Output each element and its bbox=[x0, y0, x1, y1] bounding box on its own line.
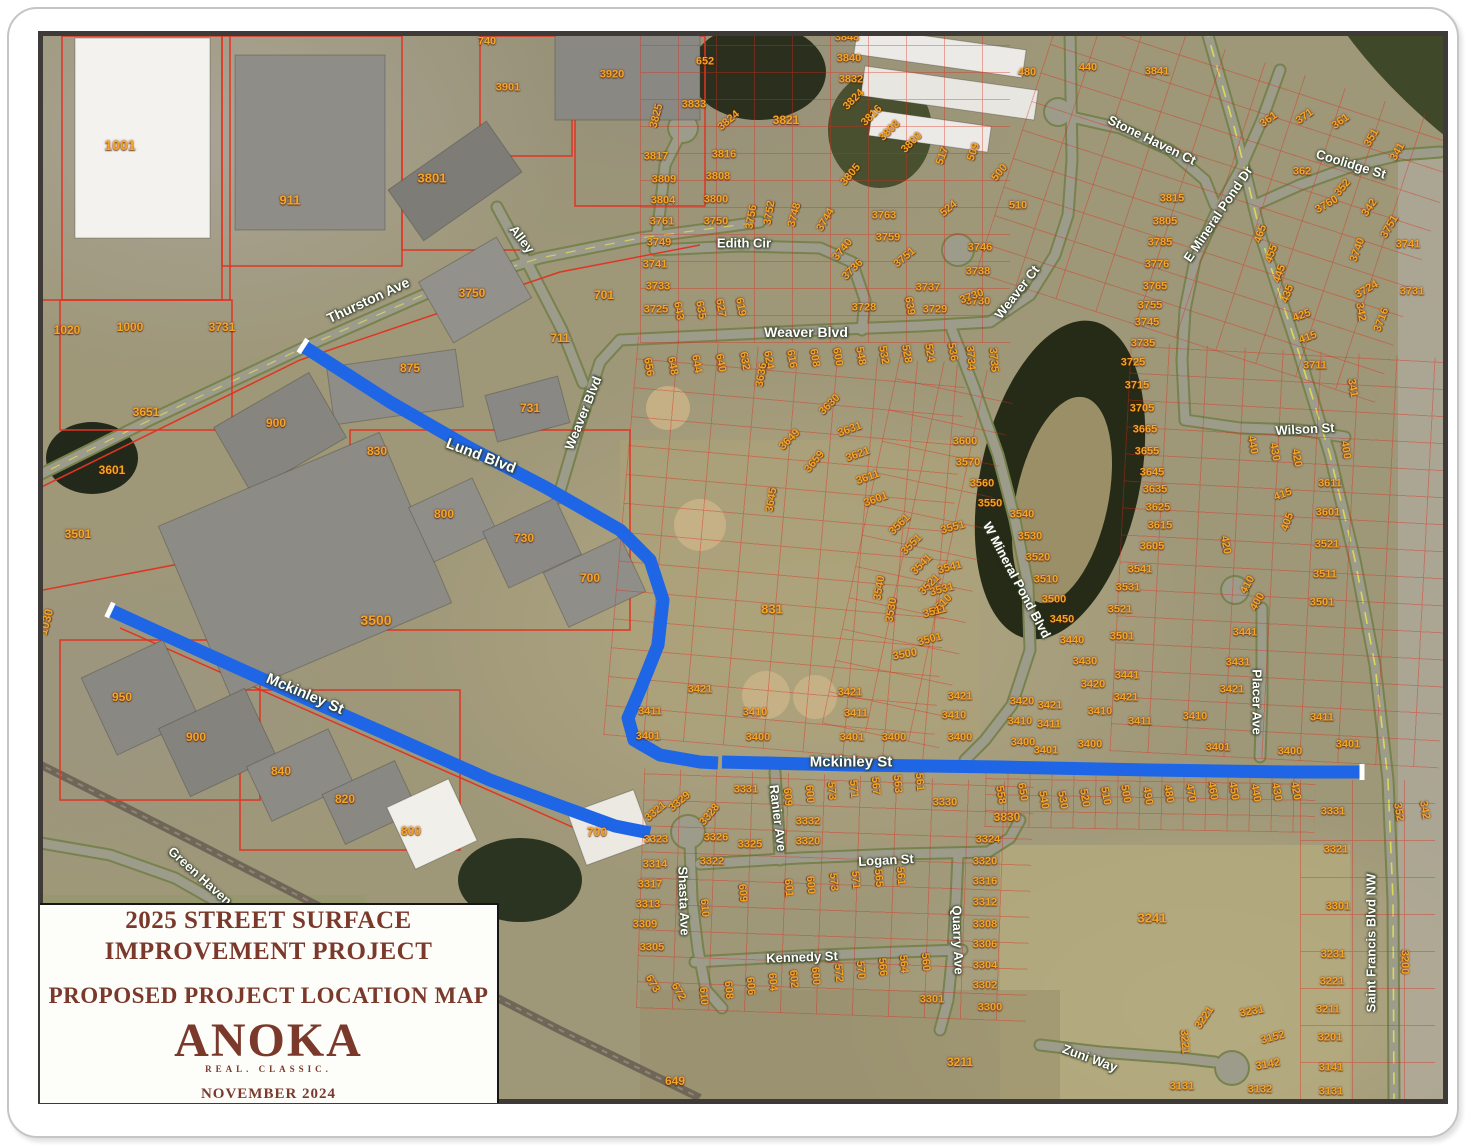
parcel-label: 730 bbox=[514, 532, 534, 544]
parcel-label: 532 bbox=[876, 345, 890, 365]
parcel-label: 3401 bbox=[636, 732, 660, 743]
street-label: Green Haven bbox=[166, 844, 234, 907]
street-label: Wilson St bbox=[1275, 421, 1335, 437]
parcel-label: 3716 bbox=[1373, 307, 1392, 334]
parcel-label: 563 bbox=[891, 774, 904, 793]
parcel-label: 3833 bbox=[682, 100, 706, 111]
parcel-label: 3715 bbox=[1125, 381, 1149, 392]
parcel-label: 3817 bbox=[644, 152, 668, 163]
parcel-label: 3320 bbox=[796, 837, 820, 848]
parcel-label: 830 bbox=[367, 445, 387, 457]
parcel-label: 3314 bbox=[643, 860, 667, 871]
parcel-label: 3920 bbox=[600, 70, 624, 81]
street-label: Mckinley St bbox=[810, 755, 893, 770]
parcel-label: 3308 bbox=[973, 920, 997, 931]
parcel-label: 3328 bbox=[698, 802, 722, 828]
parcel-label: 570 bbox=[854, 960, 867, 979]
parcel-label: 3821 bbox=[773, 114, 800, 126]
parcel-label: 3301 bbox=[920, 995, 944, 1006]
parcel-label: 3611 bbox=[1318, 479, 1342, 490]
parcel-label: 711 bbox=[550, 332, 569, 344]
parcel-label: 3500 bbox=[1042, 595, 1066, 606]
parcel-label: 3765 bbox=[1143, 282, 1167, 293]
parcel-label: 3740 bbox=[1349, 237, 1368, 264]
parcel-label: 3785 bbox=[1148, 238, 1172, 249]
parcel-label: 3725 bbox=[644, 305, 668, 316]
parcel-label: 564 bbox=[897, 954, 910, 973]
parcel-label: 3309 bbox=[633, 920, 657, 931]
parcel-label: 3500 bbox=[892, 647, 918, 662]
parcel-label: 3645 bbox=[1140, 468, 1164, 479]
parcel-label: 3221 bbox=[1320, 977, 1344, 988]
street-label: Alley bbox=[507, 223, 536, 255]
parcel-label: 3651 bbox=[133, 406, 160, 418]
parcel-label: 3241 bbox=[1138, 912, 1167, 925]
parcel-label: 3440 bbox=[1060, 636, 1084, 647]
parcel-label: 540 bbox=[1036, 790, 1050, 810]
parcel-label: 3615 bbox=[1148, 521, 1172, 532]
parcel-label: 3410 bbox=[743, 708, 767, 719]
parcel-label: 3511 bbox=[922, 604, 948, 621]
parcel-label: 3621 bbox=[845, 446, 872, 465]
parcel-label: 652 bbox=[696, 57, 714, 68]
parcel-label: 3735 bbox=[1131, 339, 1155, 350]
street-label: Logan St bbox=[858, 852, 914, 868]
parcel-label: 3324 bbox=[976, 835, 1000, 846]
parcel-label: 3531 bbox=[1116, 583, 1140, 594]
parcel-label: 3752 bbox=[762, 200, 777, 226]
parcel-label: 600 bbox=[804, 875, 817, 894]
parcel-label: 700 bbox=[587, 826, 607, 838]
street-label: E Mineral Pond Dr bbox=[1181, 164, 1254, 264]
parcel-label: 3331 bbox=[734, 785, 758, 796]
parcel-label: 3711 bbox=[1303, 361, 1327, 372]
parcel-label: 3741 bbox=[1396, 240, 1420, 251]
parcel-label: 3410 bbox=[942, 711, 966, 722]
parcel-label: 440 bbox=[1245, 435, 1259, 455]
anoka-logo: ANOKA bbox=[174, 1019, 363, 1062]
parcel-label: 517 bbox=[935, 145, 952, 166]
parcel-label: 3751 bbox=[1379, 214, 1401, 241]
parcel-label: 420 bbox=[1218, 535, 1232, 555]
parcel-label: 3800 bbox=[704, 195, 728, 206]
parcel-label: 3551 bbox=[899, 532, 924, 557]
parcel-label: 520 bbox=[1077, 788, 1091, 808]
parcel-label: 3411 bbox=[1128, 717, 1152, 728]
parcel-label: 571 bbox=[849, 870, 862, 889]
parcel-label: 900 bbox=[266, 417, 286, 429]
parcel-label: 3521 bbox=[1108, 605, 1132, 616]
street-label: Shasta Ave bbox=[676, 866, 691, 936]
parcel-label: 3728 bbox=[852, 303, 876, 314]
parcel-label: 3231 bbox=[1321, 950, 1345, 961]
parcel-label: 635 bbox=[693, 300, 707, 320]
parcel-label: 510 bbox=[1009, 201, 1027, 212]
parcel-label: 3665 bbox=[1133, 425, 1157, 436]
parcel-label: 400 bbox=[1249, 591, 1268, 612]
parcel-label: 604 bbox=[766, 972, 779, 991]
parcel-label: 639 bbox=[902, 296, 916, 316]
parcel-label: 606 bbox=[744, 976, 757, 995]
parcel-label: 440 bbox=[1248, 783, 1262, 803]
parcel-label: 530 bbox=[1055, 790, 1069, 810]
parcel-label: 3322 bbox=[700, 857, 724, 868]
parcel-label: 3401 bbox=[1206, 743, 1230, 754]
parcel-label: 640 bbox=[713, 353, 727, 373]
parcel-label: 875 bbox=[400, 362, 420, 374]
parcel-label: 3325 bbox=[738, 840, 762, 851]
parcel-label: 3645 bbox=[764, 487, 779, 513]
parcel-label: 3401 bbox=[840, 733, 864, 744]
parcel-label: 361 bbox=[1258, 110, 1279, 130]
parcel-label: 3832 bbox=[839, 75, 863, 86]
parcel-label: 800 bbox=[401, 825, 421, 837]
parcel-label: 400 bbox=[1338, 440, 1352, 460]
parcel-label: 3431 bbox=[1226, 658, 1250, 669]
parcel-label: 731 bbox=[520, 402, 540, 414]
street-label: Saint Francis Blvd NW bbox=[1365, 874, 1378, 1013]
street-label: Kennedy St bbox=[766, 949, 838, 964]
parcel-label: 3735 bbox=[986, 347, 999, 372]
parcel-label: 509 bbox=[966, 141, 983, 162]
parcel-label: 3401 bbox=[1034, 746, 1058, 757]
street-label: Placer Ave bbox=[1251, 669, 1264, 735]
parcel-label: 342 bbox=[1417, 800, 1431, 820]
parcel-label: 3141 bbox=[1319, 1063, 1343, 1074]
parcel-label: 3816 bbox=[859, 103, 884, 128]
parcel-label: 3521 bbox=[1315, 540, 1339, 551]
parcel-label: 3824 bbox=[716, 109, 742, 133]
parcel-label: 528 bbox=[899, 344, 913, 364]
parcel-label: 480 bbox=[1018, 68, 1036, 79]
parcel-label: 3731 bbox=[1400, 287, 1424, 298]
parcel-label: 3805 bbox=[1153, 217, 1177, 228]
parcel-label: 3625 bbox=[1146, 503, 1170, 514]
parcel-label: 3631 bbox=[837, 421, 864, 440]
parcel-label: 3332 bbox=[796, 817, 820, 828]
parcel-label: 3410 bbox=[1088, 707, 1112, 718]
parcel-label: 3824 bbox=[841, 87, 866, 112]
parcel-label: 3200 bbox=[1399, 950, 1410, 974]
parcel-label: 3800 bbox=[899, 130, 924, 155]
parcel-label: 648 bbox=[665, 356, 679, 376]
parcel-label: 632 bbox=[737, 351, 751, 371]
street-label: Weaver Ct bbox=[992, 263, 1041, 321]
parcel-label: 3540 bbox=[1010, 510, 1034, 521]
parcel-label: 3801 bbox=[418, 172, 447, 185]
parcel-label: 3601 bbox=[1316, 508, 1340, 519]
parcel-label: 3411 bbox=[638, 707, 662, 718]
title-line-2: IMPROVEMENT PROJECT bbox=[105, 936, 433, 967]
parcel-label: 3131 bbox=[1319, 1087, 1343, 1098]
parcel-label: 3746 bbox=[968, 243, 992, 254]
parcel-label: 3733 bbox=[646, 282, 670, 293]
parcel-label: 3745 bbox=[1135, 318, 1159, 329]
parcel-label: 701 bbox=[594, 289, 614, 301]
parcel-label: 800 bbox=[434, 508, 454, 520]
parcel-label: 500 bbox=[1118, 784, 1132, 804]
parcel-label: 3305 bbox=[640, 943, 664, 954]
parcel-label: 3511 bbox=[1313, 570, 1337, 581]
parcel-label: 3329 bbox=[667, 790, 693, 814]
parcel-label: 352 bbox=[1391, 802, 1405, 822]
parcel-label: 561 bbox=[913, 772, 926, 791]
parcel-label: 609 bbox=[736, 883, 749, 902]
parcel-label: 3330 bbox=[933, 798, 957, 809]
street-label: Quarry Ave bbox=[950, 905, 965, 975]
parcel-label: 3601 bbox=[99, 464, 126, 476]
parcel-label: 455 bbox=[1264, 243, 1281, 264]
parcel-label: 3131 bbox=[1170, 1082, 1194, 1093]
parcel-label: 3659 bbox=[803, 449, 827, 475]
parcel-label: 573 bbox=[827, 872, 840, 891]
parcel-label: 3551 bbox=[940, 520, 966, 537]
parcel-label: 3501 bbox=[65, 528, 92, 540]
parcel-label: 560 bbox=[919, 952, 932, 971]
parcel-label: 3420 bbox=[1010, 697, 1034, 708]
parcel-label: 616 bbox=[784, 349, 798, 369]
parcel-label: 643 bbox=[671, 301, 685, 321]
parcel-label: 3605 bbox=[1140, 542, 1164, 553]
parcel-label: 341 bbox=[1345, 378, 1359, 398]
parcel-label: 3520 bbox=[1026, 553, 1050, 564]
parcel-label: 610 bbox=[698, 898, 711, 917]
parcel-label: 548 bbox=[853, 346, 867, 366]
parcel-label: 3805 bbox=[839, 162, 863, 188]
parcel-label: 3600 bbox=[953, 437, 977, 448]
parcel-label: 3300 bbox=[978, 1003, 1002, 1014]
parcel-label: 420 bbox=[1289, 448, 1303, 468]
parcel-label: 3776 bbox=[1145, 260, 1169, 271]
parcel-label: 566 bbox=[876, 957, 889, 976]
title-block: 2025 STREET SURFACE IMPROVEMENT PROJECT … bbox=[40, 903, 499, 1103]
parcel-label: 3321 bbox=[1324, 845, 1348, 856]
parcel-label: 3541 bbox=[1128, 565, 1152, 576]
anoka-logo-tagline: REAL. CLASSIC. bbox=[205, 1064, 332, 1074]
parcel-label: 3705 bbox=[1130, 404, 1154, 415]
parcel-label: 3313 bbox=[636, 900, 660, 911]
parcel-label: 510 bbox=[1098, 786, 1112, 806]
parcel-label: 3501 bbox=[1110, 632, 1134, 643]
parcel-label: 361 bbox=[1330, 112, 1351, 132]
parcel-label: 656 bbox=[641, 357, 655, 377]
parcel-label: 1001 bbox=[104, 138, 135, 152]
parcel-label: 571 bbox=[847, 779, 860, 798]
parcel-label: 3725 bbox=[1121, 358, 1145, 369]
parcel-label: 3211 bbox=[947, 1056, 973, 1068]
parcel-label: 3901 bbox=[496, 83, 520, 94]
parcel-label: 430 bbox=[1267, 442, 1281, 462]
parcel-label: 3751 bbox=[892, 246, 918, 270]
parcel-label: 3301 bbox=[1326, 902, 1350, 913]
parcel-label: 3848 bbox=[835, 33, 859, 44]
parcel-label: 3400 bbox=[1078, 740, 1102, 751]
parcel-label: 572 bbox=[832, 963, 845, 982]
parcel-label: 3630 bbox=[817, 392, 842, 417]
parcel-label: 700 bbox=[580, 572, 600, 584]
parcel-label: 3430 bbox=[1073, 657, 1097, 668]
parcel-label: 3649 bbox=[777, 427, 802, 452]
parcel-label: 600 bbox=[803, 784, 816, 803]
parcel-label: 3841 bbox=[1145, 67, 1169, 78]
parcel-label: 649 bbox=[665, 1075, 685, 1087]
parcel-label: 3763 bbox=[872, 211, 896, 222]
parcel-label: 3323 bbox=[644, 835, 668, 846]
parcel-label: 3756 bbox=[744, 204, 759, 230]
parcel-label: 3400 bbox=[746, 733, 770, 744]
parcel-label: 3132 bbox=[1248, 1085, 1272, 1096]
parcel-label: 524 bbox=[938, 199, 959, 219]
parcel-label: 3421 bbox=[1220, 685, 1244, 696]
parcel-label: 3760 bbox=[1314, 194, 1341, 216]
parcel-label: 3441 bbox=[1115, 671, 1139, 682]
parcel-label: 3316 bbox=[973, 877, 997, 888]
parcel-label: 3420 bbox=[1081, 680, 1105, 691]
parcel-label: 3815 bbox=[1160, 194, 1184, 205]
parcel-label: 3450 bbox=[1050, 615, 1074, 626]
parcel-label: 430 bbox=[1269, 782, 1283, 802]
parcel-label: 1000 bbox=[117, 321, 144, 333]
parcel-label: 3410 bbox=[1183, 712, 1207, 723]
parcel-label: 3501 bbox=[1310, 598, 1334, 609]
parcel-label: 3635 bbox=[1143, 485, 1167, 496]
parcel-label: 3400 bbox=[1278, 747, 1302, 758]
street-label: Thurston Ave bbox=[325, 275, 412, 325]
parcel-label: 608 bbox=[807, 348, 821, 368]
parcel-label: 3302 bbox=[973, 981, 997, 992]
parcel-label: 840 bbox=[271, 765, 291, 777]
parcel-label: 3320 bbox=[973, 857, 997, 868]
parcel-label: 3736 bbox=[840, 257, 865, 282]
map-date: NOVEMBER 2024 bbox=[201, 1086, 336, 1103]
parcel-label: 3734 bbox=[963, 345, 976, 370]
parcel-label: 900 bbox=[186, 731, 206, 743]
parcel-label: 740 bbox=[478, 37, 496, 48]
parcel-label: 3401 bbox=[1336, 740, 1360, 751]
parcel-label: 573 bbox=[825, 781, 838, 800]
parcel-label: 561 bbox=[894, 866, 907, 885]
project-location-map-page: 1001911380139013920740652102010003731375… bbox=[0, 0, 1466, 1145]
parcel-label: 500 bbox=[990, 162, 1010, 183]
parcel-label: 3411 bbox=[1310, 713, 1334, 724]
street-label: Stone Haven Ct bbox=[1106, 113, 1198, 167]
parcel-label: 435 bbox=[1280, 283, 1297, 304]
parcel-label: 3221 bbox=[1193, 1005, 1216, 1031]
parcel-label: 536 bbox=[945, 342, 959, 362]
parcel-label: 470 bbox=[1183, 783, 1197, 803]
parcel-label: 3601 bbox=[863, 491, 890, 510]
parcel-label: 3231 bbox=[1239, 1004, 1265, 1019]
parcel-label: 3825 bbox=[649, 103, 666, 129]
parcel-label: 3748 bbox=[787, 202, 804, 228]
subtitle-line: PROPOSED PROJECT LOCATION MAP bbox=[49, 983, 489, 1009]
parcel-label: 627 bbox=[713, 298, 727, 318]
parcel-label: 644 bbox=[689, 354, 703, 374]
parcel-label: 3750 bbox=[704, 217, 728, 228]
parcel-label: 3729 bbox=[923, 305, 947, 316]
parcel-label: 3421 bbox=[838, 688, 862, 699]
parcel-label: 565 bbox=[872, 868, 885, 887]
parcel-label: 3636 bbox=[754, 362, 769, 388]
parcel-label: 3421 bbox=[688, 685, 712, 696]
parcel-label: 524 bbox=[922, 343, 936, 363]
parcel-label: 3560 bbox=[970, 479, 994, 490]
parcel-label: 3550 bbox=[978, 499, 1002, 510]
parcel-label: 3441 bbox=[1233, 628, 1257, 639]
parcel-label: 3421 bbox=[1114, 693, 1138, 704]
parcel-label: 3540 bbox=[872, 575, 887, 601]
parcel-label: 3152 bbox=[1260, 1030, 1286, 1047]
parcel-label: 3809 bbox=[652, 175, 676, 186]
parcel-label: 3321 bbox=[643, 800, 669, 824]
parcel-label: 3510 bbox=[1034, 575, 1058, 586]
parcel-label: 3761 bbox=[650, 217, 674, 228]
parcel-label: 460 bbox=[1205, 781, 1219, 801]
street-label: Weaver Blvd bbox=[764, 325, 848, 339]
parcel-label: 405 bbox=[1280, 511, 1297, 532]
parcel-label: 567 bbox=[869, 776, 882, 795]
parcel-label: 600 bbox=[809, 966, 822, 985]
parcel-label: 445 bbox=[1272, 263, 1289, 284]
parcel-label: 602 bbox=[787, 969, 800, 988]
parcel-label: 3421 bbox=[948, 692, 972, 703]
parcel-label: 3530 bbox=[884, 597, 899, 623]
parcel-label: 3840 bbox=[837, 54, 861, 65]
parcel-label: 362 bbox=[1293, 167, 1311, 178]
parcel-label: 415 bbox=[1272, 487, 1293, 504]
parcel-label: 3211 bbox=[1316, 1005, 1340, 1016]
parcel-label: 351 bbox=[1363, 127, 1382, 148]
parcel-label: 425 bbox=[1291, 308, 1312, 325]
parcel-label: 3738 bbox=[966, 267, 990, 278]
parcel-label: 3421 bbox=[1038, 701, 1062, 712]
parcel-label: 420 bbox=[1288, 781, 1302, 801]
parcel-label: 608 bbox=[722, 980, 735, 999]
street-label: Edith Cir bbox=[717, 237, 771, 250]
parcel-label: 3744 bbox=[815, 207, 837, 234]
parcel-label: 3655 bbox=[1135, 447, 1159, 458]
parcel-label: 3142 bbox=[1255, 1057, 1281, 1072]
parcel-label: 341 bbox=[1389, 141, 1408, 162]
parcel-label: 3400 bbox=[1011, 738, 1035, 749]
parcel-label: 619 bbox=[733, 297, 747, 317]
street-label: Coolidge St bbox=[1315, 147, 1388, 181]
parcel-label: 450 bbox=[1226, 781, 1240, 801]
parcel-label: 3808 bbox=[706, 172, 730, 183]
parcel-label: 3740 bbox=[831, 237, 855, 263]
parcel-label: 3750 bbox=[459, 287, 486, 299]
parcel-label: 3410 bbox=[1008, 717, 1032, 728]
parcel-label: 3759 bbox=[876, 233, 900, 244]
parcel-label: 3331 bbox=[1321, 807, 1345, 818]
parcel-label: 3306 bbox=[973, 940, 997, 951]
parcel-label: 3501 bbox=[917, 632, 943, 649]
parcel-label: 950 bbox=[112, 691, 132, 703]
parcel-label: 673 bbox=[643, 973, 662, 994]
parcel-label: 3741 bbox=[643, 260, 667, 271]
parcel-label: 490 bbox=[1140, 786, 1154, 806]
parcel-label: 3724 bbox=[1354, 279, 1381, 301]
parcel-label: 820 bbox=[335, 793, 355, 805]
parcel-label: 3530 bbox=[1018, 532, 1042, 543]
street-label: Weaver Blvd bbox=[562, 374, 603, 451]
parcel-label: 3326 bbox=[704, 833, 728, 844]
parcel-label: 3312 bbox=[973, 898, 997, 909]
parcel-label: 3411 bbox=[1037, 720, 1061, 731]
parcel-label: 601 bbox=[782, 878, 795, 897]
parcel-label: 610 bbox=[697, 986, 710, 1005]
parcel-label: 371 bbox=[1294, 107, 1315, 127]
